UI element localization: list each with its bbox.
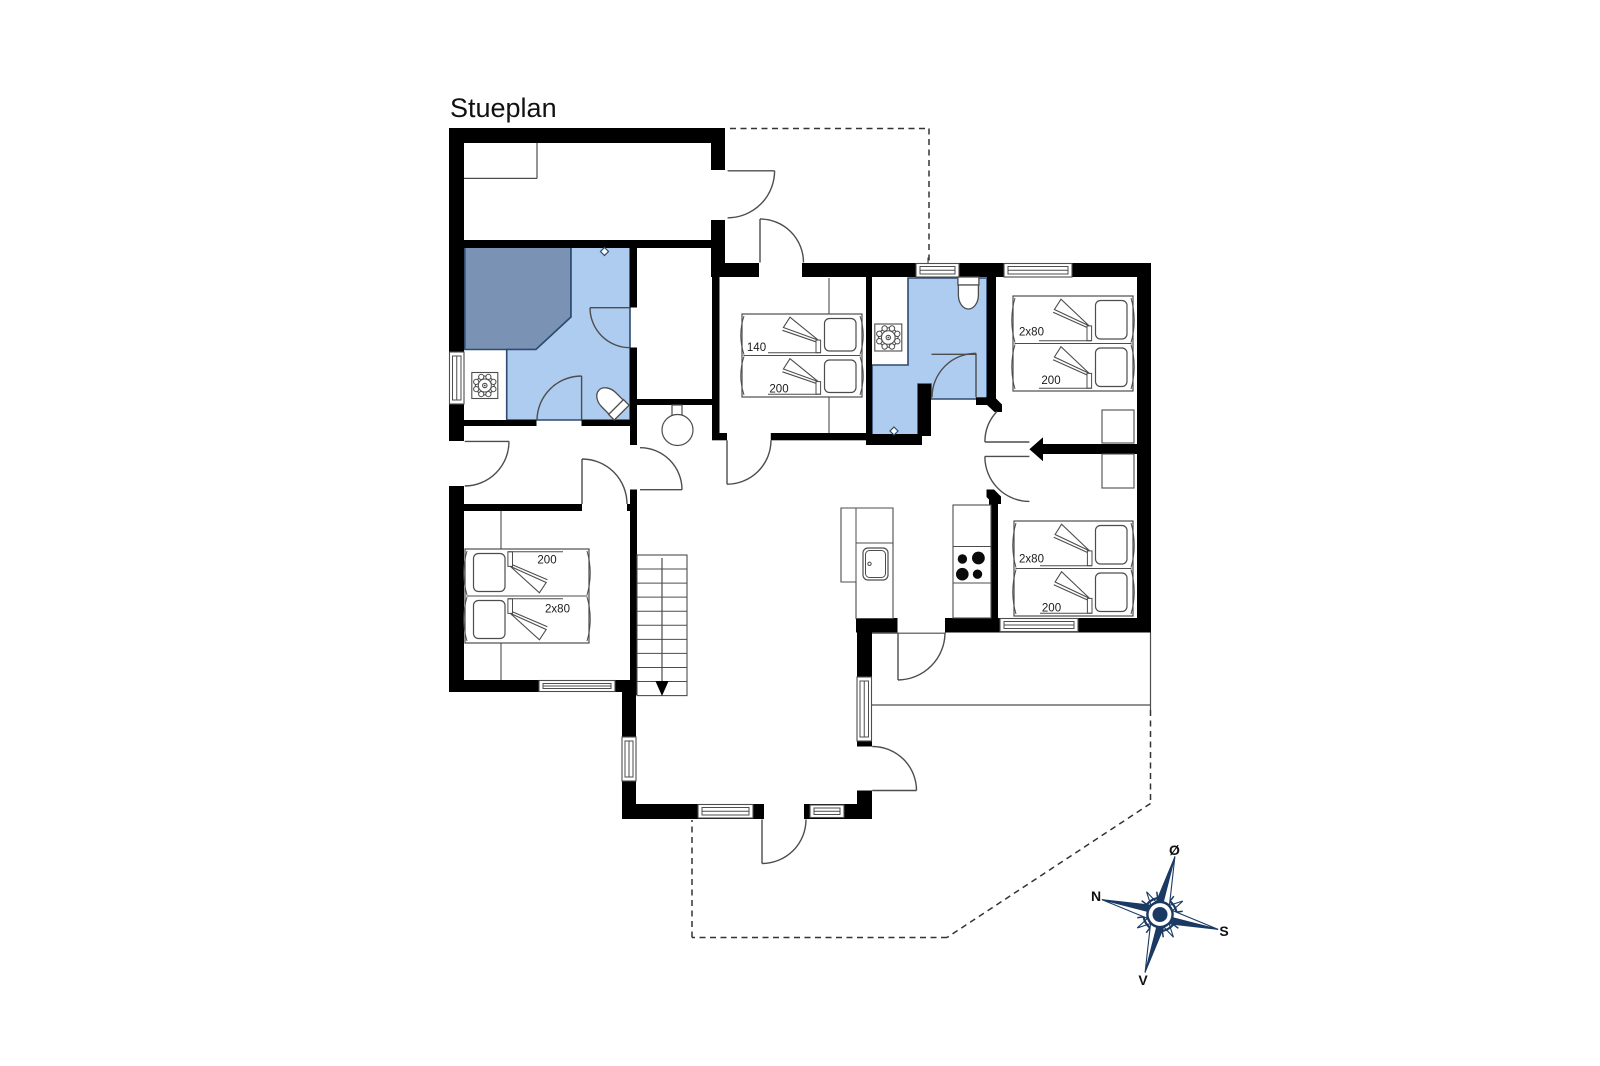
svg-text:200: 200 xyxy=(1041,375,1060,387)
svg-text:Ø: Ø xyxy=(1169,842,1180,858)
svg-text:V: V xyxy=(1138,972,1148,988)
svg-text:2x80: 2x80 xyxy=(1019,327,1044,339)
svg-text:2x80: 2x80 xyxy=(1019,554,1044,566)
svg-text:N: N xyxy=(1091,888,1101,904)
svg-text:2x80: 2x80 xyxy=(545,604,570,616)
svg-text:200: 200 xyxy=(769,384,788,396)
svg-text:Stueplan: Stueplan xyxy=(450,93,557,123)
svg-text:140: 140 xyxy=(747,342,766,354)
svg-text:200: 200 xyxy=(1042,603,1061,615)
svg-text:200: 200 xyxy=(537,555,556,567)
svg-text:S: S xyxy=(1219,923,1228,939)
